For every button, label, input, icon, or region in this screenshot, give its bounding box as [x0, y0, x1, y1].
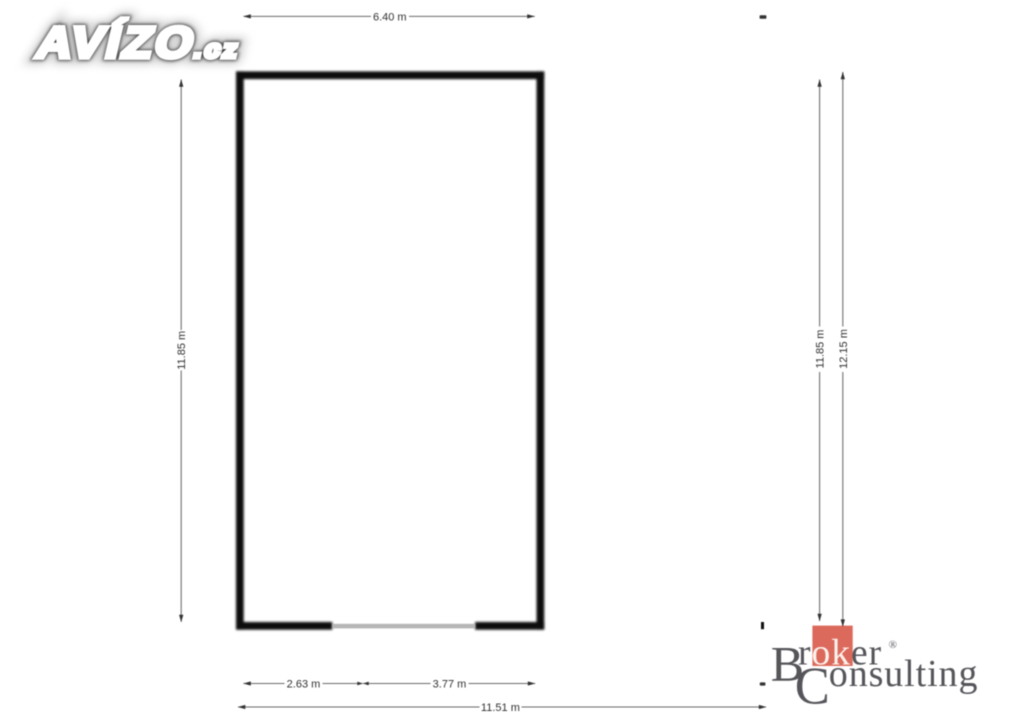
svg-text:onsulting: onsulting: [829, 653, 979, 695]
svg-text:12.15 m: 12.15 m: [838, 329, 850, 369]
svg-text:11.85 m: 11.85 m: [815, 330, 827, 369]
svg-text:6.40 m: 6.40 m: [373, 11, 407, 23]
svg-text:®: ®: [889, 639, 897, 651]
svg-text:AVÍZO.cz: AVÍZO.cz: [32, 18, 247, 67]
svg-text:2.63 m: 2.63 m: [287, 679, 321, 691]
svg-text:11.85 m: 11.85 m: [176, 331, 188, 370]
svg-text:11.51 m: 11.51 m: [481, 702, 520, 714]
svg-text:C: C: [795, 658, 830, 716]
svg-text:3.77 m: 3.77 m: [433, 679, 467, 691]
